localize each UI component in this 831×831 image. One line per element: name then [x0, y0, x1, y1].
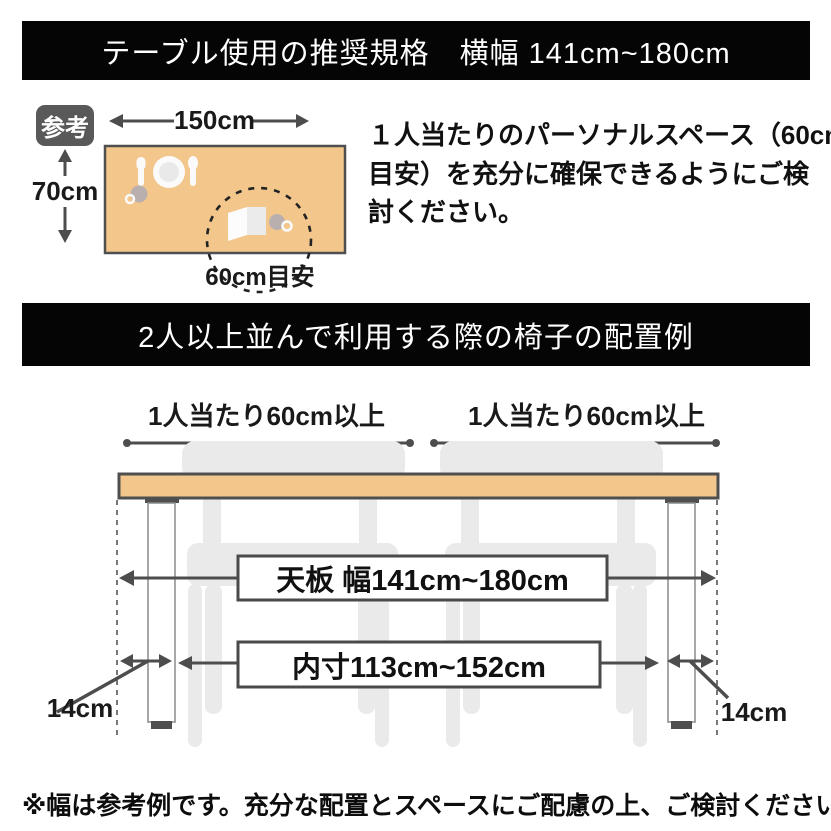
reference-note-line2: 目安）を充分に確保できるようにご検: [368, 155, 831, 194]
table-depth-label: 70cm: [28, 176, 102, 207]
table-leg-right: [665, 497, 699, 729]
top-banner: テーブル使用の推奨規格 横幅 141cm~180cm: [22, 21, 810, 80]
infographic-page: テーブル使用の推奨規格 横幅 141cm~180cm 参考 150cm 70cm…: [0, 0, 831, 831]
inner-width-label: 内寸113cm~152cm: [238, 642, 600, 687]
arrangement-banner-title: 2人以上並んで利用する際の椅子の配置例: [138, 314, 694, 356]
leg-offset-label-left: 14cm: [41, 693, 119, 724]
tabletop-width-label: 天板 幅141cm~180cm: [238, 556, 607, 600]
personal-space-label: 60cm目安: [203, 257, 317, 292]
top-banner-title: テーブル使用の推奨規格 横幅 141cm~180cm: [101, 30, 730, 72]
reference-note-line1: １人当たりのパーソナルスペース（60cm: [368, 116, 831, 155]
arrangement-banner: 2人以上並んで利用する際の椅子の配置例: [22, 303, 810, 366]
reference-note: １人当たりのパーソナルスペース（60cm 目安）を充分に確保できるようにご検 討…: [368, 116, 831, 232]
reference-badge: 参考: [36, 105, 94, 146]
plate-icon: [153, 156, 185, 188]
table-width-label: 150cm: [174, 105, 252, 136]
leg-offset-label-right: 14cm: [715, 697, 793, 728]
table-leg-left: [145, 497, 179, 729]
reference-note-line3: 討ください。: [368, 193, 831, 232]
seat-width-label-left: 1人当たり60cm以上: [148, 396, 372, 433]
seat-width-label-right: 1人当たり60cm以上: [468, 396, 692, 433]
footnote: ※幅は参考例です。充分な配置とスペースにご配慮の上、ご検討ください。: [22, 786, 831, 822]
tabletop-front-view: [119, 474, 718, 498]
